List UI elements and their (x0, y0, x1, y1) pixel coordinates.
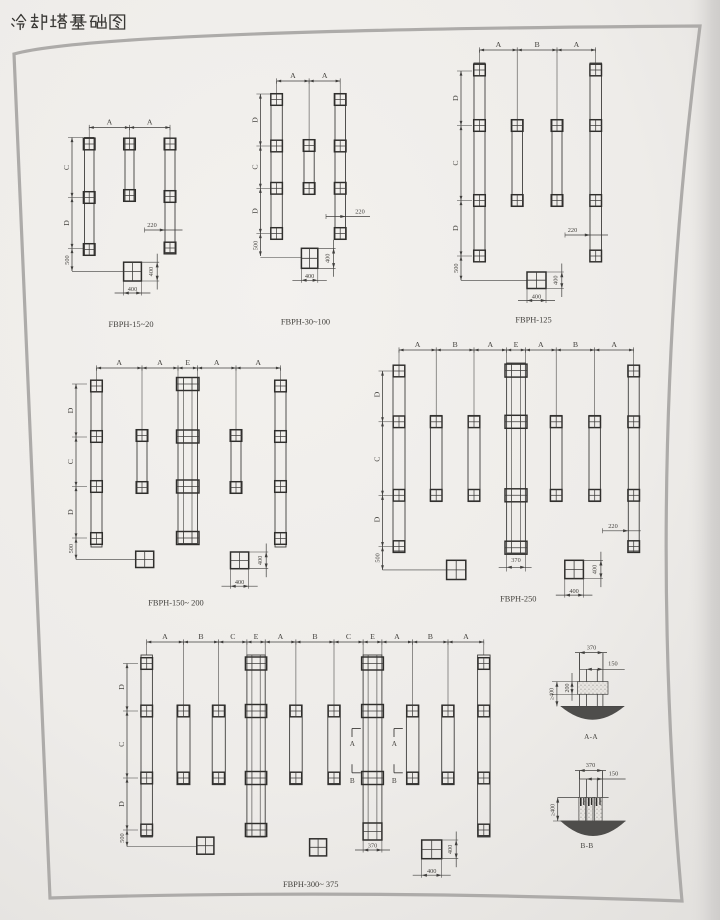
svg-text:B: B (428, 632, 433, 641)
svg-text:150: 150 (609, 771, 618, 778)
svg-text:220: 220 (608, 523, 617, 530)
svg-text:400: 400 (447, 845, 454, 854)
svg-text:A: A (278, 632, 284, 641)
svg-text:B-B: B-B (581, 842, 594, 850)
svg-text:220: 220 (568, 227, 577, 234)
svg-text:A: A (322, 71, 328, 80)
svg-text:A: A (147, 117, 153, 126)
svg-text:A: A (611, 340, 617, 349)
svg-text:400: 400 (592, 565, 599, 574)
svg-text:500: 500 (119, 833, 126, 842)
svg-text:370: 370 (586, 762, 595, 769)
svg-text:A: A (574, 40, 580, 49)
svg-text:D: D (250, 117, 259, 123)
svg-text:E: E (514, 340, 519, 349)
svg-text:A: A (463, 632, 469, 641)
svg-text:400: 400 (235, 579, 244, 586)
svg-text:B: B (198, 632, 203, 641)
svg-text:≥400: ≥400 (550, 688, 556, 700)
svg-text:500: 500 (453, 263, 460, 272)
svg-text:A: A (538, 340, 544, 349)
svg-text:B: B (392, 777, 397, 785)
svg-text:D: D (373, 516, 382, 522)
svg-text:C: C (62, 165, 71, 170)
svg-text:400: 400 (305, 273, 314, 280)
svg-text:400: 400 (569, 588, 578, 595)
svg-text:D: D (117, 684, 126, 690)
svg-text:400: 400 (324, 254, 331, 263)
svg-text:C: C (117, 742, 126, 747)
svg-text:A: A (415, 340, 421, 349)
svg-text:A: A (162, 632, 168, 641)
svg-text:400: 400 (553, 275, 560, 284)
svg-text:D: D (66, 509, 75, 515)
svg-text:400: 400 (128, 286, 137, 293)
svg-text:E: E (254, 632, 259, 641)
svg-text:370: 370 (511, 557, 520, 564)
svg-text:370: 370 (368, 843, 377, 850)
svg-text:A: A (290, 71, 296, 80)
svg-text:C: C (373, 457, 382, 462)
svg-text:FBPH-15~20: FBPH-15~20 (108, 320, 153, 329)
svg-text:A: A (496, 40, 502, 49)
svg-text:C: C (346, 632, 351, 641)
svg-text:220: 220 (355, 209, 364, 216)
svg-text:D: D (451, 225, 460, 231)
svg-text:FBPH-250: FBPH-250 (500, 595, 536, 604)
svg-text:A: A (255, 358, 261, 367)
svg-text:FBPH-125: FBPH-125 (515, 316, 551, 325)
svg-text:C: C (250, 164, 259, 169)
svg-text:D: D (66, 407, 75, 413)
svg-text:B: B (350, 777, 355, 785)
svg-text:D: D (250, 208, 259, 214)
svg-text:A: A (392, 740, 398, 748)
svg-text:200: 200 (565, 684, 571, 693)
svg-text:500: 500 (375, 553, 382, 562)
svg-text:D: D (117, 801, 126, 807)
svg-text:B: B (534, 40, 539, 49)
svg-text:500: 500 (68, 544, 75, 553)
svg-text:400: 400 (257, 556, 264, 565)
svg-text:E: E (185, 358, 190, 367)
svg-text:≥400: ≥400 (550, 804, 556, 816)
svg-text:B: B (573, 340, 578, 349)
svg-text:500: 500 (64, 255, 71, 264)
svg-text:A: A (107, 117, 113, 126)
svg-text:A-A: A-A (584, 733, 598, 741)
svg-text:A: A (116, 358, 122, 367)
svg-text:A: A (487, 340, 493, 349)
svg-text:FBPH-150~ 200: FBPH-150~ 200 (148, 599, 204, 608)
svg-text:220: 220 (147, 222, 156, 229)
svg-text:C: C (451, 160, 460, 165)
svg-text:400: 400 (532, 293, 541, 300)
svg-text:D: D (62, 220, 71, 226)
svg-text:500: 500 (252, 241, 259, 250)
svg-text:A: A (157, 358, 163, 367)
svg-text:FBPH-300~ 375: FBPH-300~ 375 (283, 880, 339, 889)
svg-text:A: A (394, 632, 400, 641)
svg-text:A: A (214, 358, 220, 367)
svg-text:D: D (373, 391, 382, 397)
svg-text:A: A (350, 740, 356, 748)
svg-text:D: D (451, 95, 460, 101)
svg-text:150: 150 (608, 661, 617, 668)
svg-text:E: E (370, 632, 375, 641)
svg-text:FBPH-30~100: FBPH-30~100 (281, 318, 330, 327)
svg-text:400: 400 (427, 868, 436, 875)
svg-text:400: 400 (148, 267, 155, 276)
svg-text:C: C (230, 632, 235, 641)
svg-text:B: B (312, 632, 317, 641)
svg-text:C: C (66, 459, 75, 464)
svg-text:B: B (452, 340, 457, 349)
svg-text:370: 370 (587, 644, 596, 651)
